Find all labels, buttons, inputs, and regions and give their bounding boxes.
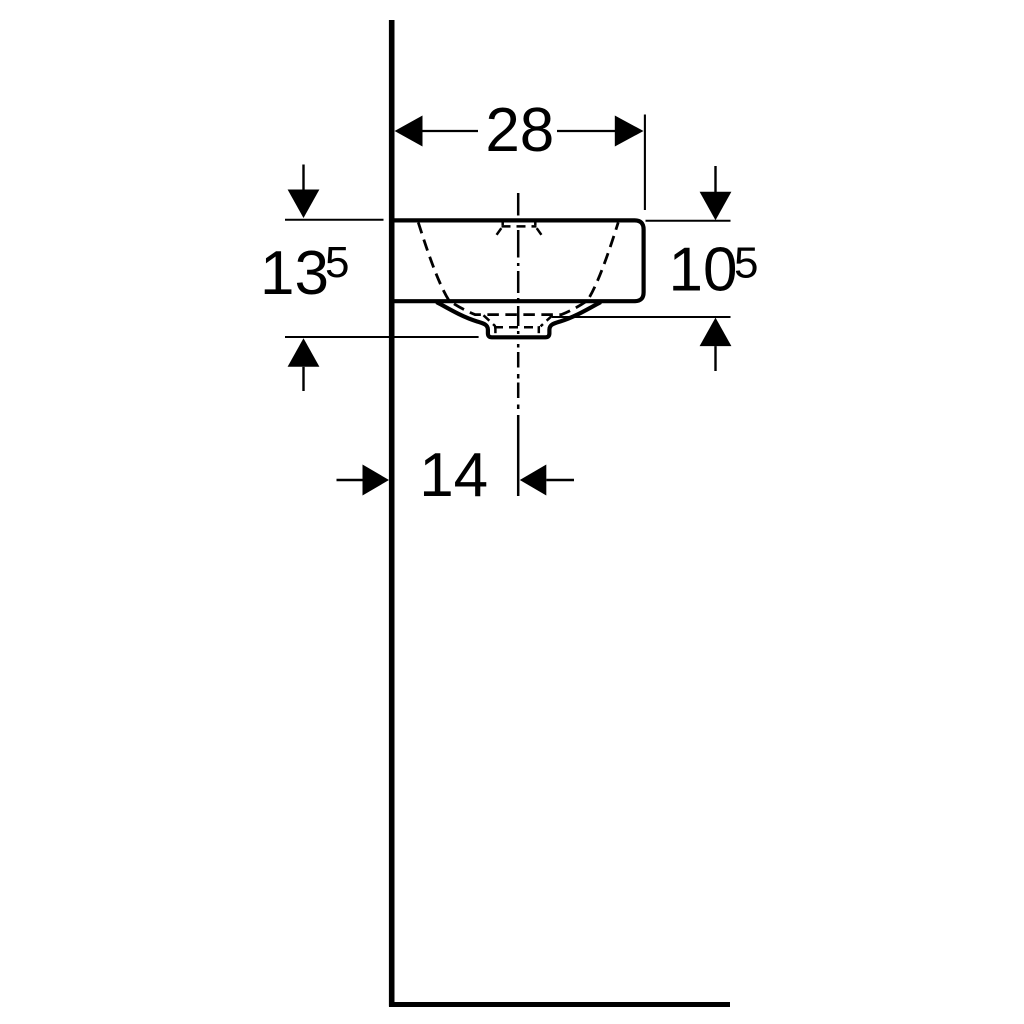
svg-text:5: 5 [325,238,349,287]
svg-text:14: 14 [419,441,488,510]
svg-text:5: 5 [734,239,758,288]
svg-text:13: 13 [260,239,329,308]
svg-text:10: 10 [669,236,738,305]
svg-text:28: 28 [485,96,554,165]
